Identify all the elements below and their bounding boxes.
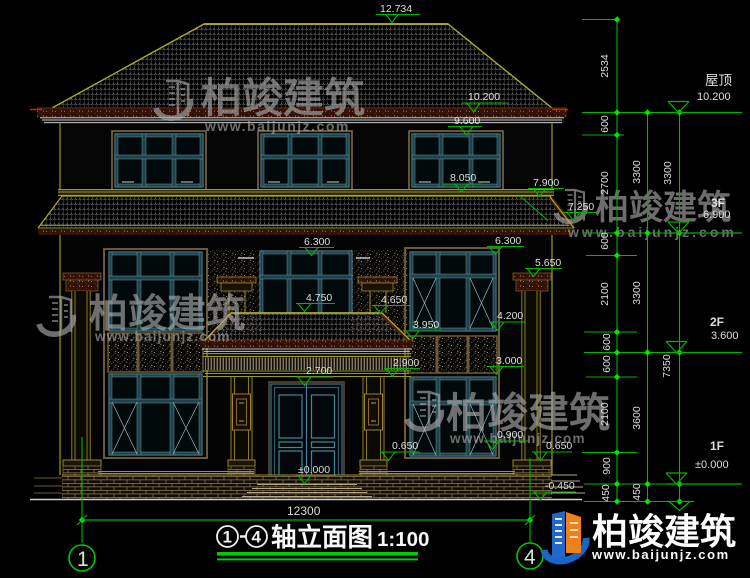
svg-text:4: 4 [252,528,262,547]
svg-text:4: 4 [524,546,536,569]
svg-text:5.650: 5.650 [535,257,561,269]
svg-text:6.900: 6.900 [703,209,731,221]
svg-text:0.650: 0.650 [392,440,418,452]
svg-text:0.650: 0.650 [546,440,572,452]
svg-text:2.700: 2.700 [306,365,332,377]
svg-text:轴立面图: 轴立面图 [271,523,373,552]
svg-text:3.600: 3.600 [711,330,739,342]
svg-text:柏竣建筑: 柏竣建筑 [201,75,365,121]
svg-text:8.050: 8.050 [450,172,476,184]
svg-text:9.600: 9.600 [454,115,480,127]
svg-text:屋顶: 屋顶 [705,73,732,88]
svg-text:7.250: 7.250 [568,201,594,213]
svg-text:2700: 2700 [599,171,611,195]
svg-text:2534: 2534 [599,54,611,78]
svg-text:0.900: 0.900 [497,429,523,441]
svg-text:3300: 3300 [631,281,643,305]
svg-text:600: 600 [601,355,613,373]
svg-text:www.baijunjz.com: www.baijunjz.com [204,118,350,134]
svg-text:±0.000: ±0.000 [298,464,330,476]
svg-text:2F: 2F [710,315,724,329]
svg-text:±0.000: ±0.000 [695,459,729,471]
svg-text:3300: 3300 [662,161,674,185]
svg-text:3600: 3600 [631,406,643,430]
svg-text:6.300: 6.300 [304,236,330,248]
svg-text:www.baijunjz.com: www.baijunjz.com [591,547,730,562]
svg-text:600: 600 [599,232,611,250]
svg-text:450: 450 [631,483,643,501]
svg-text:2.900: 2.900 [393,357,419,369]
svg-text:4.650: 4.650 [381,294,407,306]
svg-text:900: 900 [601,457,613,475]
svg-text:6.300: 6.300 [495,235,521,247]
svg-text:7.900: 7.900 [533,177,559,189]
svg-text:-0.450: -0.450 [545,480,575,492]
svg-text:柏竣建筑: 柏竣建筑 [592,511,736,552]
svg-text:10.200: 10.200 [697,91,731,103]
svg-text:3300: 3300 [631,160,643,184]
svg-text:1:100: 1:100 [377,528,429,551]
svg-text:4.200: 4.200 [497,310,523,322]
svg-text:3.000: 3.000 [496,355,522,367]
svg-text:1: 1 [77,548,89,571]
svg-text:3F: 3F [711,196,725,210]
svg-text:柏竣建筑: 柏竣建筑 [446,390,610,436]
svg-text:7350: 7350 [661,354,673,378]
svg-text:12.734: 12.734 [380,3,412,15]
svg-text:3.950: 3.950 [413,319,439,331]
svg-text:www.baijunjz.com: www.baijunjz.com [567,224,737,240]
svg-text:10.200: 10.200 [468,91,500,103]
svg-text:www.baijunjz.com: www.baijunjz.com [94,329,231,344]
svg-text:450: 450 [600,484,612,502]
svg-text:1: 1 [223,528,232,547]
svg-text:1F: 1F [710,439,724,453]
svg-text:12300: 12300 [287,504,321,518]
svg-text:4.750: 4.750 [306,292,332,304]
svg-text:2100: 2100 [599,282,611,306]
svg-text:2100: 2100 [599,402,611,426]
svg-text:600: 600 [601,333,613,351]
svg-text:600: 600 [599,115,611,133]
